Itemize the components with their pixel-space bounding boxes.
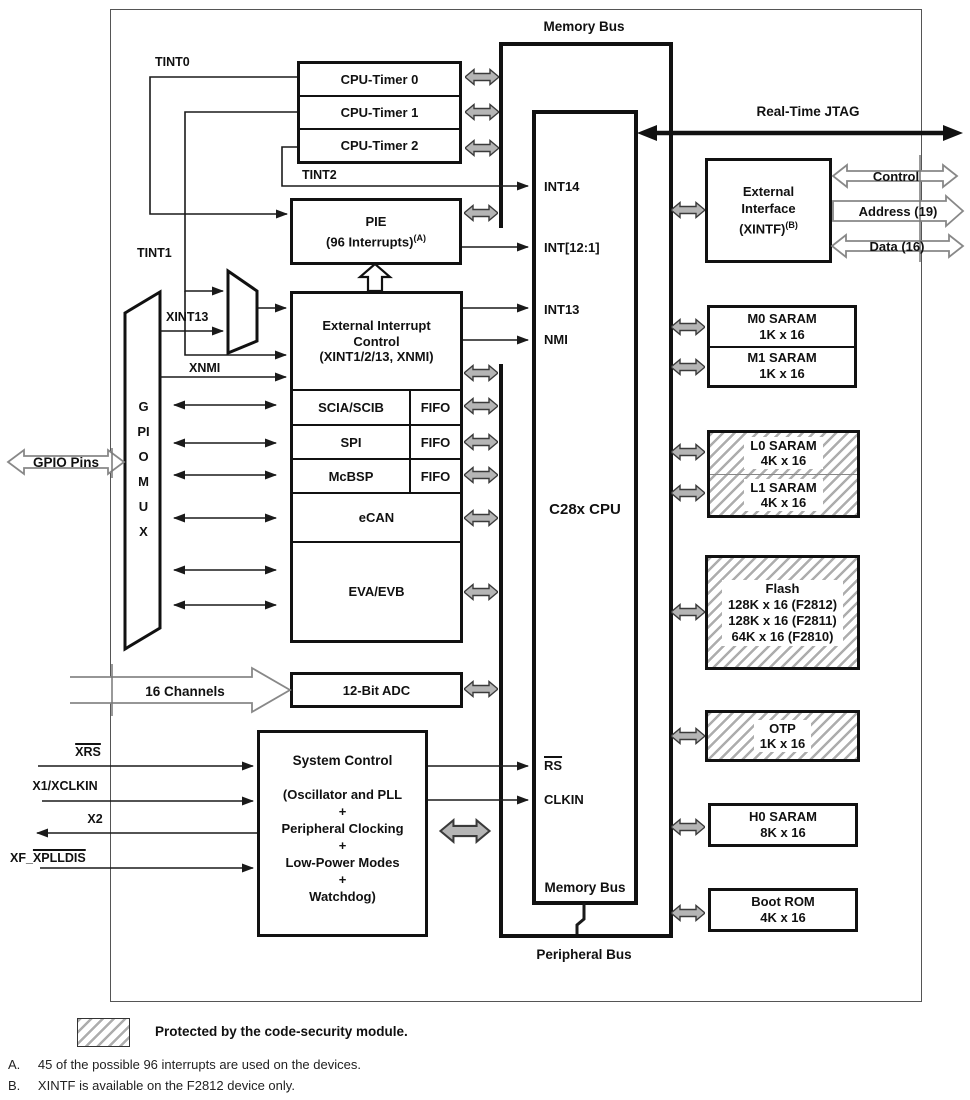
footnote-a-text: 45 of the possible 96 interrupts are use…	[38, 1057, 361, 1072]
cpu-name-label: C28x CPU	[549, 501, 621, 518]
l0-bus-arrow	[671, 445, 705, 460]
pie-up-arrow	[360, 264, 390, 291]
tint2-label: TINT2	[302, 168, 337, 182]
m1-bus-arrow	[671, 360, 705, 375]
mcbsp-bus-arrow	[464, 468, 498, 483]
cpu-membus-label: Memory Bus	[544, 880, 625, 895]
signal-lines	[37, 77, 584, 934]
footnote-b-text: XINTF is available on the F2812 device o…	[38, 1078, 295, 1093]
xf-xplldis-label: XF_XPLLDIS	[10, 851, 86, 865]
tint1-line	[185, 112, 297, 291]
memory-bus-top-label: Memory Bus	[543, 19, 624, 34]
connector-layer	[0, 0, 970, 1100]
footnote-b-id: B.	[8, 1078, 20, 1093]
footnote-a-id: A.	[8, 1057, 20, 1072]
adc-bus-arrow	[464, 682, 498, 697]
sysctrl-bus-arrow	[440, 820, 489, 842]
cpu-rs-label: RS	[544, 758, 562, 773]
xf-overline-part: XPLLDIS	[33, 851, 86, 865]
control-label: Control	[873, 169, 919, 184]
jtag-arrow	[637, 125, 963, 141]
xint13-mux-shape	[228, 271, 257, 353]
pie-bus-arrow	[464, 206, 498, 221]
h0-bus-arrow	[671, 820, 705, 835]
timer2-bus-arrow	[465, 141, 499, 156]
xnmi-label: XNMI	[189, 361, 220, 375]
tint0-line	[150, 77, 297, 214]
x2-label: X2	[87, 812, 102, 826]
flash-bus-arrow	[671, 605, 705, 620]
border-overlays	[112, 155, 920, 716]
footnote-b: B. XINTF is available on the F2812 devic…	[8, 1078, 295, 1093]
footnote-a: A. 45 of the possible 96 interrupts are …	[8, 1057, 361, 1072]
cpu-clkin-label: CLKIN	[544, 792, 584, 807]
spi-bus-arrow	[464, 435, 498, 450]
gpio-pins-label: GPIO Pins	[33, 455, 99, 470]
cpu-nmi-label: NMI	[544, 332, 568, 347]
data-label: Data (16)	[870, 239, 925, 254]
peripheral-bus-label: Peripheral Bus	[536, 947, 631, 962]
timer1-bus-arrow	[465, 105, 499, 120]
bus-connector-line	[577, 903, 584, 934]
scia-bus-arrow	[464, 399, 498, 414]
x1-xclkin-label: X1/XCLKIN	[32, 779, 97, 793]
extint-bus-arrow	[464, 366, 498, 381]
xf-prefix: XF_	[10, 851, 33, 865]
tint1-label: TINT1	[137, 246, 172, 260]
cpu-int14-label: INT14	[544, 179, 579, 194]
m0-bus-arrow	[671, 320, 705, 335]
bootrom-bus-arrow	[671, 906, 705, 921]
gpio-mux-label: GPIO MUX	[136, 394, 151, 544]
tint0-label: TINT0	[155, 55, 190, 69]
xint13-label: XINT13	[166, 310, 208, 324]
block-diagram: CPU-Timer 0 CPU-Timer 1 CPU-Timer 2 PIE …	[0, 0, 970, 1100]
address-label: Address (19)	[859, 204, 938, 219]
ecan-bus-arrow	[464, 511, 498, 526]
timer0-bus-arrow	[465, 70, 499, 85]
eva-bus-arrow	[464, 585, 498, 600]
legend-text: Protected by the code-security module.	[155, 1024, 408, 1039]
jtag-label: Real-Time JTAG	[756, 104, 859, 119]
xintf-bus-arrow	[671, 203, 705, 218]
l1-bus-arrow	[671, 486, 705, 501]
cpu-int13-label: INT13	[544, 302, 579, 317]
xrs-label: XRS	[75, 745, 101, 759]
adc-channels-label: 16 Channels	[145, 684, 225, 699]
otp-bus-arrow	[671, 729, 705, 744]
cpu-int12-label: INT[12:1]	[544, 240, 600, 255]
